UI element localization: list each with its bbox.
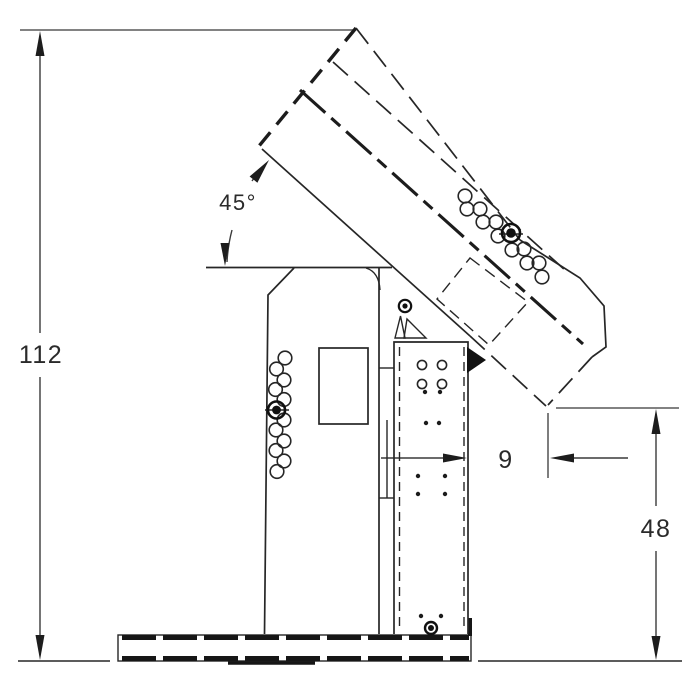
technical-drawing: 112 45° 9 48 (0, 0, 700, 700)
dimension-offset: 9 (381, 413, 628, 478)
boom-inner-rail (333, 62, 565, 270)
pivot-gusset-left (395, 316, 405, 338)
boom-center-phantom-line (300, 90, 583, 344)
dimension-boom-angle: 45° (206, 160, 392, 268)
dimension-label-discharge-height: 48 (641, 515, 672, 543)
dimension-label-offset: 9 (498, 446, 513, 474)
support-column (394, 300, 486, 634)
column-outline (394, 342, 468, 634)
dimension-label-boom-angle: 45° (219, 190, 257, 215)
dimension-overall-height: 112 (18, 30, 355, 661)
arrowhead-left (550, 454, 574, 463)
base (118, 618, 471, 663)
arrowhead-down (36, 635, 45, 660)
boom (259, 28, 606, 406)
arrowhead-up (652, 409, 661, 434)
column-dot-holes (416, 390, 447, 618)
pivot-bracket-arc (366, 268, 380, 290)
arrowhead-down (652, 636, 661, 660)
pivot-gusset-right (404, 319, 426, 338)
pivot-pin (399, 300, 411, 312)
boom-bottom-edge (262, 149, 470, 336)
column-base-bolt (425, 622, 437, 634)
body-panel (319, 348, 368, 424)
drawing-canvas: 112 45° 9 48 (0, 0, 700, 700)
boom-rest-wedge (467, 347, 486, 373)
boom-end-cap (259, 28, 356, 146)
dimension-label-overall-height: 112 (19, 341, 63, 369)
arrowhead-up (36, 31, 45, 56)
body-pivot-bolt (265, 402, 289, 419)
body-hole-cluster (269, 351, 292, 478)
machine-body (265, 268, 395, 634)
column-bolt-holes (417, 360, 446, 388)
boom-hatch-opening (437, 258, 528, 345)
